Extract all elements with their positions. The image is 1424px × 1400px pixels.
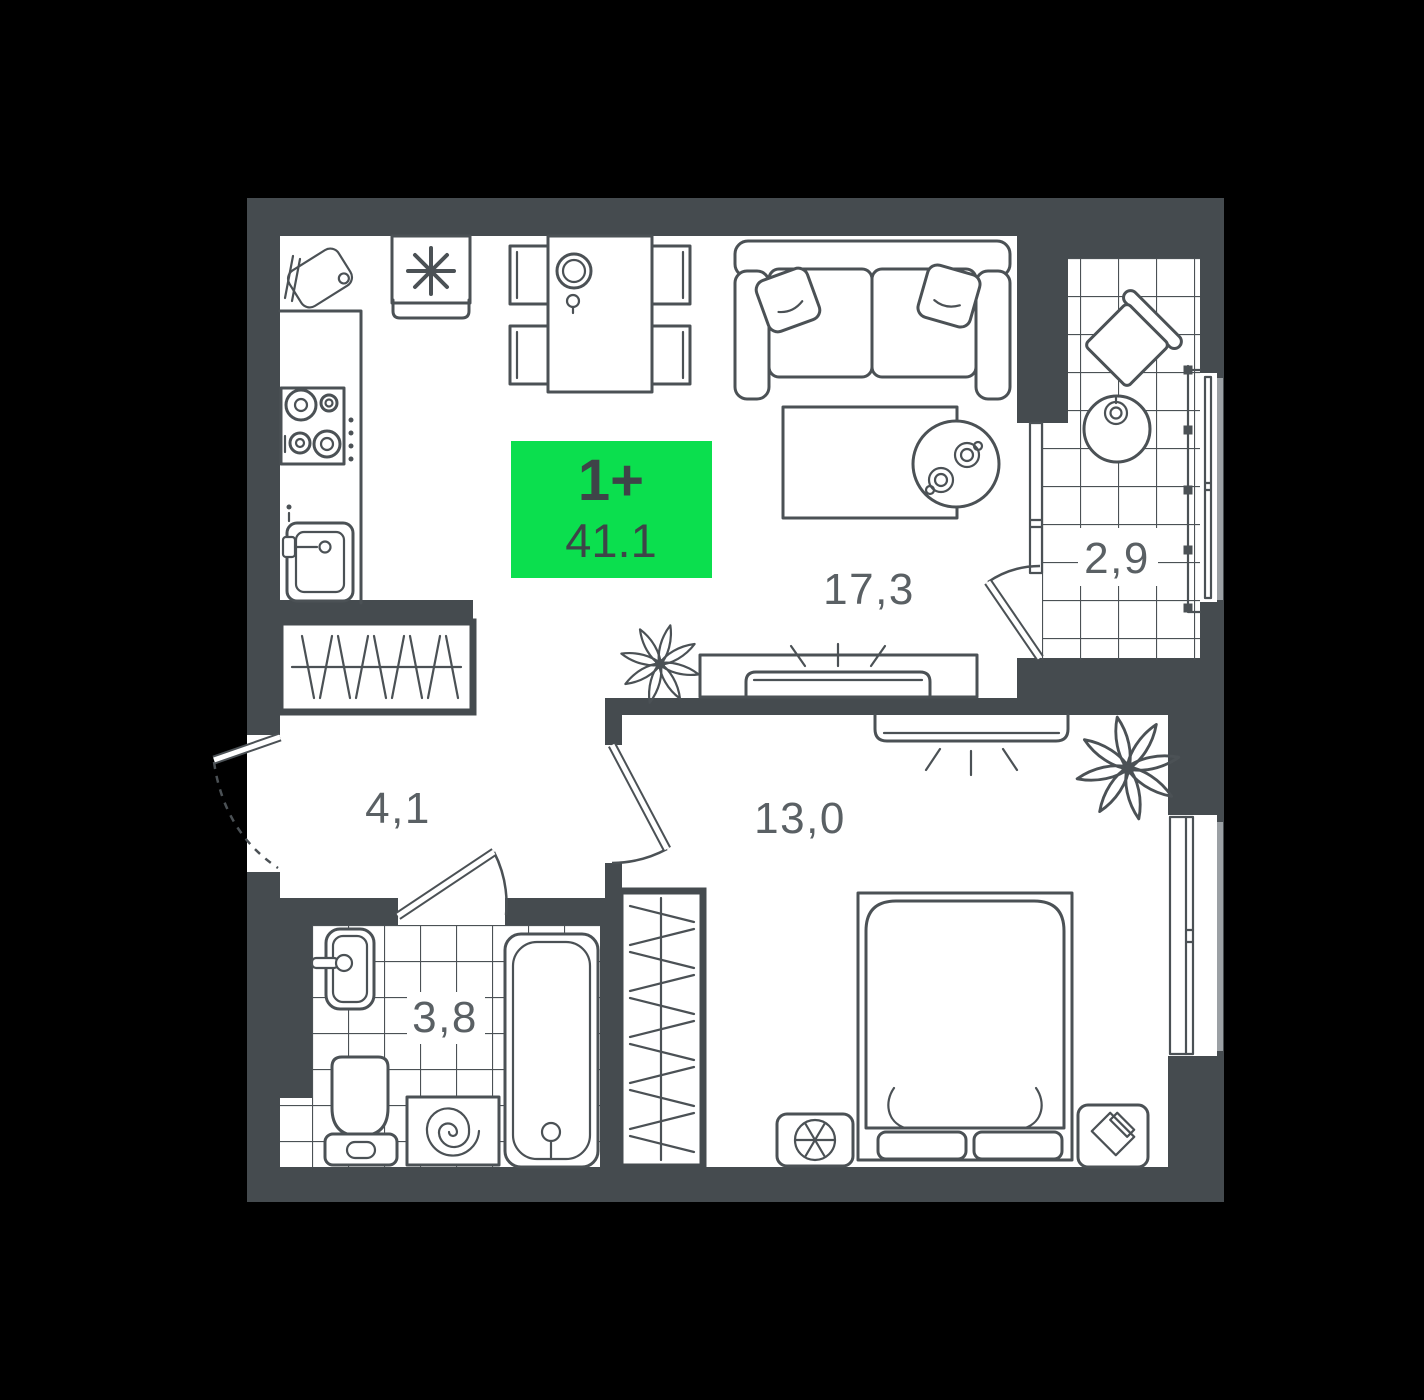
badge-total-area: 41.1	[565, 514, 656, 567]
hall-wardrobe	[280, 622, 473, 712]
label-hallway: 4,1	[365, 784, 431, 833]
label-balcony: 2,9	[1084, 534, 1150, 583]
apartment-badge: 1+ 41.1	[511, 441, 712, 578]
nightstand	[1078, 1105, 1148, 1167]
pillow-icon	[974, 1132, 1062, 1159]
snowflake-icon	[408, 248, 454, 294]
bed	[858, 893, 1072, 1160]
label-bathroom: 3,8	[412, 993, 478, 1042]
bedroom-wardrobe	[620, 891, 703, 1167]
label-bedroom: 13,0	[754, 794, 846, 843]
washing-machine-icon	[407, 1097, 499, 1165]
hallway	[280, 622, 473, 712]
side-table	[913, 421, 999, 507]
floor-plan: 17,3 2,9 4,1 13,0 3,8 1+ 41.1	[0, 0, 1424, 1400]
balcony-outer-window-opening	[1200, 373, 1217, 602]
balcony-table	[1084, 396, 1150, 462]
bathtub-icon	[505, 934, 598, 1167]
air-conditioner-icon	[777, 1114, 853, 1166]
label-living-kitchen: 17,3	[823, 565, 915, 614]
entrance-door-opening	[247, 735, 280, 872]
toilet-icon	[325, 1057, 397, 1165]
badge-rooms-count: 1+	[578, 448, 644, 513]
pillow-icon	[878, 1132, 966, 1159]
